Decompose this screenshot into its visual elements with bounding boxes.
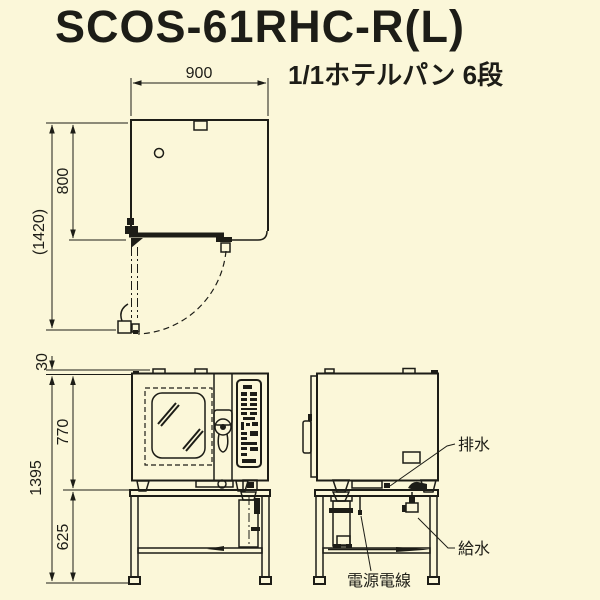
- stand-foot: [129, 577, 140, 584]
- front-door-handle: [214, 410, 232, 452]
- drain-outlet: [384, 483, 390, 488]
- side-door-handle: [303, 414, 312, 453]
- glass-reflections: [158, 403, 203, 451]
- dim-overall-height: 1395: [28, 460, 45, 496]
- top-hole: [155, 149, 164, 158]
- top-vent-notch: [194, 121, 207, 130]
- side-view-drawing: 排水 給水 電源電線: [303, 369, 490, 591]
- door-handle-closed: [216, 237, 232, 252]
- stand-front: [129, 490, 271, 584]
- top-tab: [325, 369, 334, 373]
- drain-elbow: [408, 482, 427, 490]
- top-view-drawing: 900 800 (1420): [31, 65, 268, 334]
- drain-label: 排水: [458, 436, 490, 454]
- dim-depth: 800: [55, 168, 72, 195]
- power-cable-label: 電源電線: [347, 572, 411, 590]
- side-vent: [403, 452, 420, 463]
- control-panel: [237, 380, 261, 467]
- dim-stand-height: 625: [55, 524, 72, 551]
- dim-top-tab: 30: [34, 353, 51, 371]
- stand-foot: [260, 577, 271, 584]
- stand-foot: [314, 577, 325, 584]
- drain-tank-side: [329, 492, 353, 548]
- door-swing-arc: [138, 251, 226, 334]
- technical-drawing: 900 800 (1420): [0, 0, 600, 600]
- stand-shelf: [138, 548, 262, 553]
- drip-tray: [196, 481, 233, 487]
- dim-body-height: 770: [55, 419, 72, 446]
- dim-depth-door-open: (1420): [31, 209, 48, 255]
- water-supply-label: 給水: [458, 540, 490, 558]
- dim-width: 900: [186, 65, 213, 82]
- door-handle-open: [118, 304, 139, 334]
- door-window-frame: [145, 388, 212, 465]
- oven-top-outline: [131, 120, 268, 237]
- door-glass: [152, 393, 205, 458]
- power-cable-leader-line: [361, 516, 371, 571]
- front-view-drawing: 30 770 1395 625: [28, 353, 271, 584]
- stand-foot: [428, 577, 439, 584]
